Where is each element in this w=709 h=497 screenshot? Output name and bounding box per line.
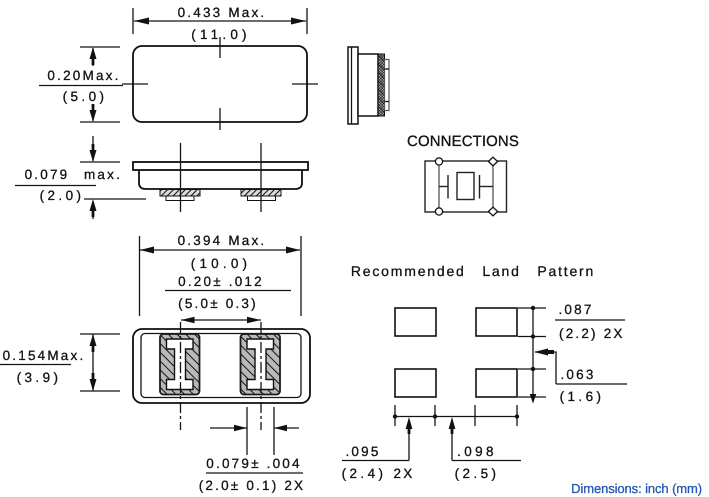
svg-text:(2.4): (2.4) [342, 466, 387, 481]
svg-text:0.079: 0.079 [25, 167, 70, 182]
svg-text:max.: max. [84, 167, 122, 182]
svg-text:(2.0± 0.1) 2X: (2.0± 0.1) 2X [199, 478, 306, 493]
svg-text:Recommended Land Pattern: Recommended Land Pattern [351, 263, 595, 279]
svg-text:(11.0): (11.0) [191, 27, 250, 42]
svg-text:(5.0): (5.0) [63, 89, 108, 104]
svg-text:0.079± .004: 0.079± .004 [206, 456, 301, 471]
svg-text:(5.0± 0.3): (5.0± 0.3) [178, 296, 258, 311]
svg-text:(1.6): (1.6) [560, 389, 605, 404]
svg-text:(2.0): (2.0) [40, 188, 85, 203]
svg-text:.095: .095 [345, 444, 380, 459]
svg-text:0.20Max.: 0.20Max. [47, 68, 120, 83]
svg-text:0.20± .012: 0.20± .012 [178, 274, 264, 289]
svg-text:(2.2) 2X: (2.2) 2X [559, 326, 625, 341]
svg-text:0.394 Max.: 0.394 Max. [178, 233, 267, 248]
svg-text:(10.0): (10.0) [191, 256, 251, 271]
svg-text:.087: .087 [558, 302, 593, 317]
svg-text:0.154Max.: 0.154Max. [3, 348, 86, 363]
svg-text:0.433 Max.: 0.433 Max. [178, 5, 267, 20]
svg-text:.098: .098 [457, 444, 497, 459]
svg-text:CONNECTIONS: CONNECTIONS [407, 133, 519, 150]
svg-text:Dimensions: inch (mm): Dimensions: inch (mm) [571, 481, 702, 496]
svg-text:.063: .063 [560, 367, 595, 382]
svg-text:(2.5): (2.5) [455, 466, 500, 481]
svg-text:2X: 2X [394, 466, 415, 481]
svg-text:(3.9): (3.9) [17, 370, 62, 385]
